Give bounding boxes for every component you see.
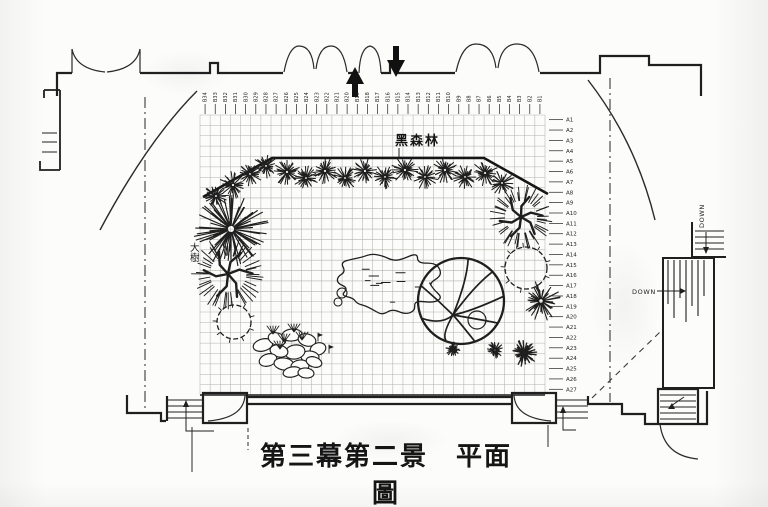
col-label: B20 — [345, 92, 351, 102]
col-label: B2 — [527, 95, 533, 102]
bush-symbol — [217, 305, 251, 339]
sightline-dashed — [592, 332, 660, 398]
forest-label: 黑森林 — [395, 130, 440, 149]
row-label: A3 — [566, 138, 574, 144]
plant-symbol — [519, 348, 528, 357]
large-tree-symbol — [422, 260, 503, 341]
stage-entry-up-arrow-head — [346, 67, 364, 84]
col-label: B19 — [355, 92, 361, 102]
col-label: B15 — [395, 92, 401, 102]
plant-symbol — [492, 172, 514, 194]
row-label: A10 — [566, 211, 577, 217]
col-label: B13 — [416, 92, 422, 102]
col-label: B11 — [436, 92, 442, 102]
col-label: B24 — [304, 92, 310, 102]
left-offstage-treads — [42, 133, 57, 152]
row-label: A5 — [566, 159, 574, 165]
plant-symbol — [475, 163, 498, 186]
col-label: B23 — [314, 92, 320, 102]
plant-symbol — [274, 160, 299, 184]
row-label: A23 — [566, 346, 577, 352]
row-label: A7 — [566, 180, 574, 186]
row-label: A20 — [566, 315, 577, 321]
row-label: A15 — [566, 263, 577, 269]
row-label: A1 — [566, 118, 573, 124]
bush-symbol — [505, 247, 547, 289]
col-label: B31 — [233, 92, 239, 102]
col-label: B12 — [426, 92, 432, 102]
col-label: B16 — [385, 92, 391, 102]
col-label: B25 — [294, 92, 300, 102]
col-label: B18 — [365, 92, 371, 102]
plant-symbol — [434, 160, 458, 183]
big-tree-label: 大樹 — [190, 245, 201, 264]
row-label: A14 — [566, 252, 577, 258]
col-label: B29 — [253, 92, 259, 102]
stage-entry-down-arrow — [393, 46, 399, 62]
rock-pile-stone — [298, 367, 315, 379]
marker-flag — [329, 345, 334, 349]
col-label: B6 — [487, 95, 493, 102]
row-label: A9 — [566, 201, 574, 207]
row-label: A16 — [566, 273, 577, 279]
plant-symbol — [353, 159, 377, 183]
col-label: B9 — [456, 95, 462, 102]
left-offstage-stair — [40, 90, 60, 170]
row-label: A26 — [566, 377, 577, 383]
col-label: B22 — [324, 92, 330, 102]
proscenium-arc-left — [100, 91, 197, 230]
right-stair-large — [663, 258, 714, 388]
row-label: A19 — [566, 304, 577, 310]
col-label: B21 — [335, 92, 341, 102]
stair-leader-right — [563, 412, 576, 430]
row-label: A4 — [566, 149, 574, 155]
plant-symbol — [313, 159, 337, 184]
col-label: B30 — [243, 92, 249, 102]
stair-arrow-right — [560, 406, 566, 413]
floor-plan-drawing: DOWN DOWN B34B33B32B31B30B29B28B27B26B25… — [0, 0, 768, 507]
col-label: B3 — [517, 95, 523, 102]
bush-symbol — [213, 301, 254, 342]
scanned-stage-plan: DOWN DOWN B34B33B32B31B30B29B28B27B26B25… — [0, 0, 768, 507]
bush-symbol — [501, 243, 550, 292]
row-label: A22 — [566, 335, 577, 341]
row-label: A11 — [566, 221, 577, 227]
col-label: B4 — [507, 95, 513, 102]
row-label: A17 — [566, 284, 577, 290]
marker-flag — [318, 333, 323, 337]
plant-symbol — [392, 158, 418, 180]
row-label: A25 — [566, 367, 577, 373]
proscenium-arc-right — [588, 80, 655, 220]
row-label: A27 — [566, 387, 577, 393]
col-label: B32 — [223, 92, 229, 102]
col-label: B1 — [538, 95, 544, 102]
down-arrow-lower — [680, 288, 686, 294]
plant-symbol — [195, 195, 269, 265]
col-label: B33 — [213, 92, 219, 102]
row-label: A24 — [566, 356, 577, 362]
col-label: B27 — [274, 92, 280, 102]
row-label: A12 — [566, 232, 577, 238]
plant-symbol — [450, 346, 456, 352]
stair-arrow-left — [183, 400, 189, 407]
col-label: B5 — [497, 95, 503, 102]
col-label: B28 — [264, 92, 270, 102]
plan-title: 第三幕第二景 平面圖 — [248, 436, 524, 507]
rock-outcrop-symbol — [337, 254, 440, 313]
right-stair-upper-treads — [695, 231, 724, 249]
row-label: A18 — [566, 294, 577, 300]
row-label: A6 — [566, 170, 574, 176]
rock-outcrop-symbol — [334, 298, 342, 306]
down-label-lower: DOWN — [632, 288, 656, 296]
row-label: A2 — [566, 128, 573, 134]
row-label: A21 — [566, 325, 577, 331]
row-label: A13 — [566, 242, 577, 248]
down-arrow-upper — [703, 247, 709, 254]
row-label: A8 — [566, 190, 574, 196]
door-swing-arcs-top — [72, 44, 539, 73]
col-label: B10 — [446, 92, 452, 102]
col-label: B26 — [284, 92, 290, 102]
plant-symbol — [488, 343, 503, 358]
col-label: B14 — [406, 92, 412, 102]
down-label-upper: DOWN — [698, 204, 706, 228]
col-label: B17 — [375, 92, 381, 102]
col-label: B7 — [477, 95, 483, 102]
plant-symbol — [526, 282, 560, 320]
back-wall-outline — [57, 56, 701, 96]
col-label: B8 — [466, 95, 472, 102]
col-label: B34 — [203, 92, 209, 102]
